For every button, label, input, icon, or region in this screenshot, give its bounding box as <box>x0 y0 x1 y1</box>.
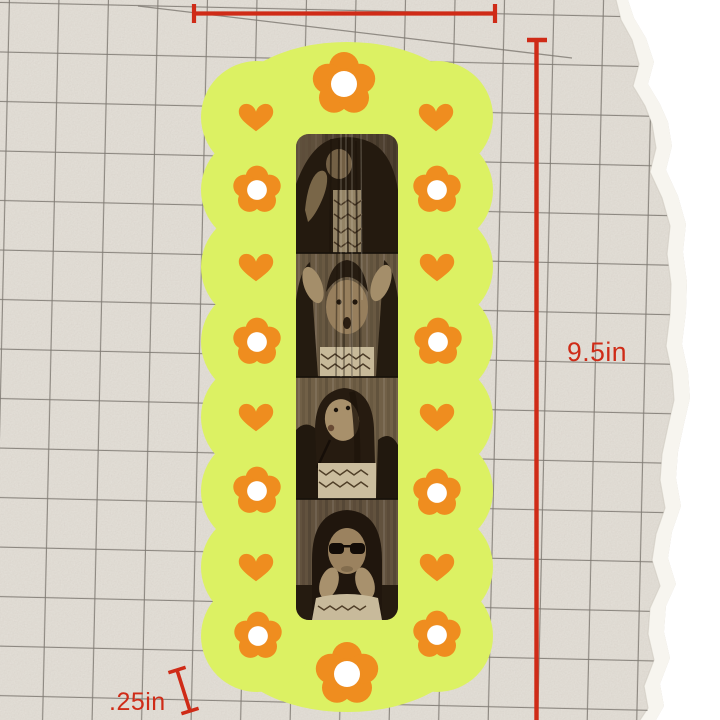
photo-strip <box>296 134 398 620</box>
height-label: 9.5in <box>567 337 627 367</box>
product-dimension-image: 9.5in .25in <box>0 0 720 720</box>
depth-label: .25in <box>109 688 166 716</box>
scene: 9.5in .25in <box>0 0 720 720</box>
